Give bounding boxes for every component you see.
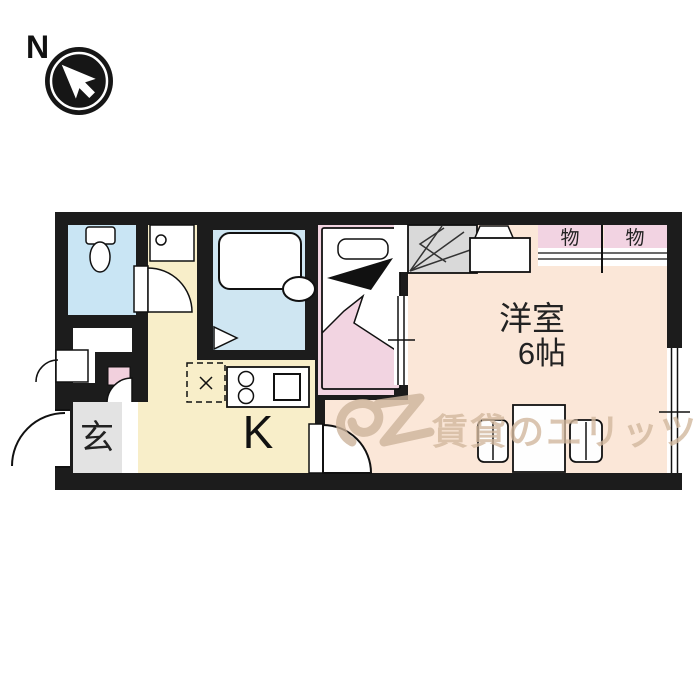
entrance: 玄 xyxy=(12,402,138,473)
compass: N xyxy=(26,29,113,115)
toilet-door-leaf xyxy=(134,266,148,312)
entrance-step xyxy=(122,402,138,473)
closet-left-label: 物 xyxy=(560,227,579,249)
main-room-label-line2: 6帖 xyxy=(518,336,566,371)
meter-box-door-swing xyxy=(36,360,58,382)
toilet-bowl xyxy=(90,242,110,272)
bed-nook xyxy=(318,225,415,395)
bath-washbasin xyxy=(283,277,315,301)
closet-right-label: 物 xyxy=(625,227,644,249)
bathroom xyxy=(213,230,315,350)
stove-burner xyxy=(239,389,254,404)
bed-pillow xyxy=(338,239,388,259)
washing-machine-drain xyxy=(156,235,166,245)
entrance-label: 玄 xyxy=(80,419,114,457)
kitchen-door-leaf xyxy=(309,424,323,473)
kitchen-sink xyxy=(274,374,300,400)
floorplan-canvas: N xyxy=(0,0,700,700)
meter-box xyxy=(56,350,88,382)
stairs xyxy=(408,225,477,273)
watermark-text: 賃貸のエリッツ xyxy=(431,411,698,452)
stove-burner xyxy=(239,372,254,387)
nook-gap-top xyxy=(394,225,408,272)
floorplan-drawing: N xyxy=(0,0,700,700)
compass-north-label: N xyxy=(26,29,49,65)
main-room-label-line1: 洋室 xyxy=(499,300,565,337)
desk xyxy=(470,238,530,272)
kitchen-label: K xyxy=(243,406,274,458)
closets: 物 物 xyxy=(538,225,667,273)
